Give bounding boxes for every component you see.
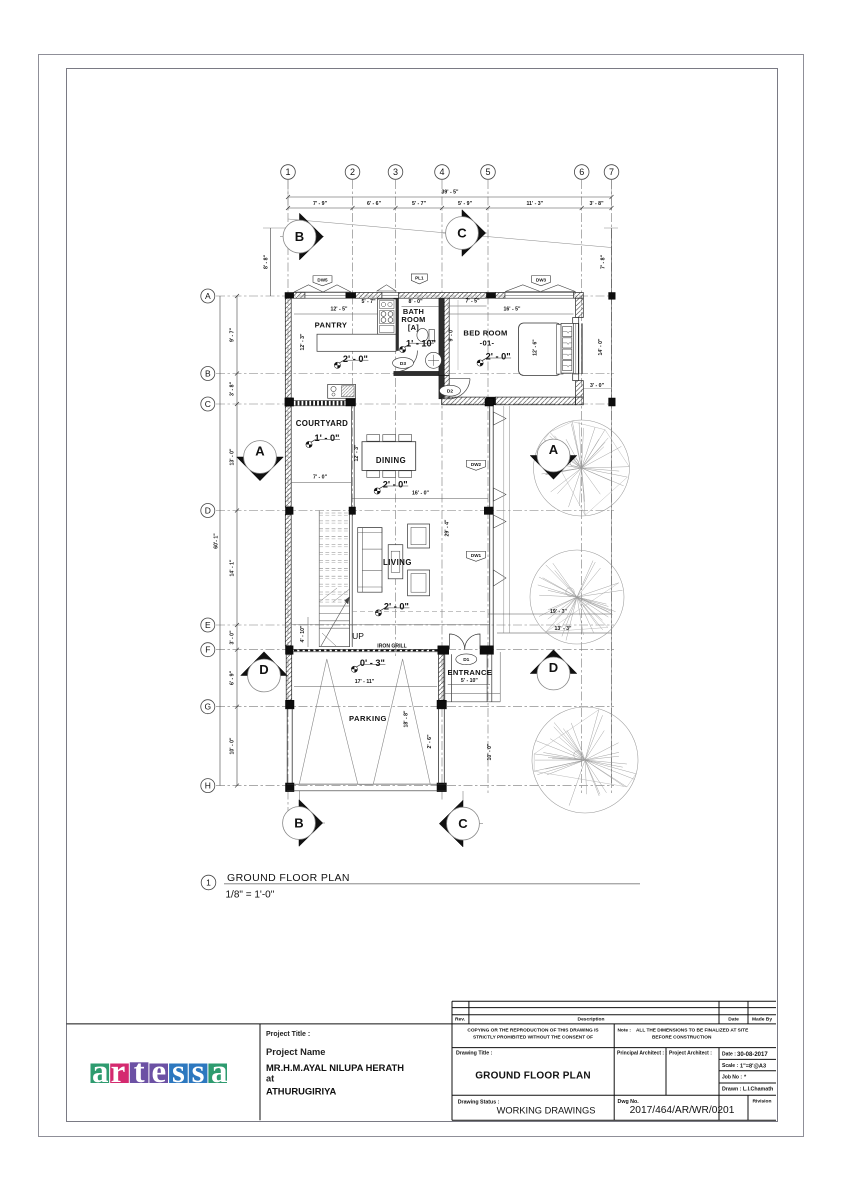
svg-text:8' - 8": 8' - 8" [264,254,270,269]
svg-text:12' - 3": 12' - 3" [300,333,306,350]
svg-text:r: r [111,1054,126,1090]
svg-text:D: D [205,506,211,516]
svg-text:5' - 7": 5' - 7" [361,299,376,305]
svg-text:30-08-2017: 30-08-2017 [737,1052,768,1058]
svg-text:7' - 9": 7' - 9" [313,201,328,207]
svg-text:Rev.: Rev. [455,1017,466,1023]
svg-text:Rivision: Rivision [752,1099,771,1105]
svg-text:12' - 3": 12' - 3" [354,444,360,461]
svg-text:E: E [205,620,211,630]
svg-text:G: G [204,702,211,712]
svg-text:a: a [92,1054,109,1090]
svg-text:11' - 3": 11' - 3" [526,201,543,207]
svg-text:A: A [549,442,559,457]
svg-text:e: e [151,1054,166,1090]
svg-text:B: B [295,229,304,244]
svg-text:B: B [205,369,211,379]
svg-text:Note :: Note : [618,1028,632,1034]
svg-text:3: 3 [393,167,398,177]
svg-text:7' - 8": 7' - 8" [601,254,607,269]
svg-text:2' - 0": 2' - 0" [383,480,408,490]
svg-text:-01-: -01- [480,339,495,348]
svg-text:29' - 4": 29' - 4" [445,519,451,536]
svg-text:8' - 0": 8' - 0" [408,299,423,305]
svg-text:Scale :: Scale : [722,1063,738,1069]
svg-text:ENTRANCE: ENTRANCE [448,668,493,677]
svg-text:*: * [744,1075,747,1081]
svg-text:B: B [294,816,303,831]
svg-text:1: 1 [285,167,290,177]
svg-text:0' - 3": 0' - 3" [360,658,385,668]
svg-text:WORKING DRAWINGS: WORKING DRAWINGS [497,1105,596,1115]
svg-text:7' - 0": 7' - 0" [313,475,328,481]
svg-text:F: F [205,645,210,655]
svg-text:4: 4 [439,167,444,177]
svg-text:17' - 11": 17' - 11" [355,679,375,685]
svg-text:9' - 0": 9' - 0" [449,327,455,342]
svg-text:STRICTLY PROHIBITED WITHOUT TH: STRICTLY PROHIBITED WITHOUT THE CONSENT … [473,1035,593,1041]
svg-text:COURTYARD: COURTYARD [296,419,348,428]
svg-text:A: A [255,444,265,459]
svg-text:IRON GRILL: IRON GRILL [377,643,406,649]
svg-text:t: t [134,1054,145,1090]
svg-text:UP: UP [352,631,364,641]
svg-text:7' - 5": 7' - 5" [465,299,480,305]
svg-text:1' - 10": 1' - 10" [406,339,436,349]
svg-text:D: D [259,662,268,677]
svg-text:Drawn : L.I.Chamath: Drawn : L.I.Chamath [722,1087,773,1093]
svg-text:13' - 0": 13' - 0" [230,448,236,465]
svg-text:5' - 9": 5' - 9" [458,201,473,207]
svg-text:Project Name: Project Name [266,1047,325,1057]
svg-text:GROUND FLOOR PLAN: GROUND FLOOR PLAN [475,1071,591,1082]
svg-text:12' - 5": 12' - 5" [331,307,348,313]
svg-text:A: A [205,291,211,301]
svg-text:12' - 6": 12' - 6" [533,339,539,356]
svg-text:5' - 10": 5' - 10" [461,678,478,684]
svg-text:6' - 6": 6' - 6" [367,201,382,207]
svg-text:1/8" = 1'-0": 1/8" = 1'-0" [226,890,275,901]
svg-text:7: 7 [609,167,614,177]
svg-text:Project Architect :: Project Architect : [669,1051,712,1057]
svg-text:Date :: Date : [722,1052,736,1058]
svg-text:2' - 0": 2' - 0" [343,354,368,364]
svg-text:MR.H.M.AYAL NILUPA HERATH: MR.H.M.AYAL NILUPA HERATH [266,1062,404,1073]
svg-text:GROUND FLOOR PLAN: GROUND FLOOR PLAN [227,872,350,884]
svg-text:5' - 7": 5' - 7" [412,201,427,207]
svg-text:H: H [205,781,211,791]
svg-text:60'- 1": 60'- 1" [214,533,220,549]
svg-text:Principal Architect : :: Principal Architect : : [617,1051,667,1057]
svg-text:ALL THE DIMENSIONS TO BE FINAL: ALL THE DIMENSIONS TO BE FINALIZED AT SI… [636,1028,748,1034]
svg-text:Description: Description [578,1017,605,1023]
svg-text:10' - 0": 10' - 0" [487,743,493,760]
svg-text:1' - 0": 1' - 0" [315,433,340,443]
svg-text:DW3: DW3 [536,277,547,282]
svg-text:D: D [549,660,558,675]
svg-text:2: 2 [350,167,355,177]
svg-text:at: at [266,1073,274,1083]
svg-text:16' - 0": 16' - 0" [412,491,429,497]
svg-text:Drawing Status :: Drawing Status : [458,1100,500,1106]
svg-text:5: 5 [485,167,490,177]
svg-text:2' - 0": 2' - 0" [384,602,409,612]
svg-text:Date: Date [728,1017,739,1023]
svg-text:2017/464/AR/WR/0201: 2017/464/AR/WR/0201 [630,1105,735,1116]
svg-text:a: a [211,1054,228,1090]
svg-text:3' - 0": 3' - 0" [230,630,236,645]
svg-text:DW2: DW2 [471,462,482,467]
svg-text:s: s [192,1054,205,1090]
svg-text:C: C [457,226,467,241]
svg-text:DW1: DW1 [471,553,482,558]
svg-text:6' - 9": 6' - 9" [230,670,236,685]
svg-text:2' - 6": 2' - 6" [427,734,433,749]
svg-text:D2: D2 [447,389,453,395]
svg-text:DINING: DINING [376,456,406,465]
svg-text:COPYING OR THE REPRODUCTION OF: COPYING OR THE REPRODUCTION OF THIS DRAW… [467,1028,598,1034]
svg-text:Job No :: Job No : [722,1075,742,1081]
svg-text:C: C [458,816,468,831]
svg-text:LIVING: LIVING [383,558,412,567]
svg-text:D3: D3 [400,361,406,367]
svg-text:4' - 10": 4' - 10" [300,625,306,642]
svg-text:1"=8'@A3: 1"=8'@A3 [740,1063,766,1069]
svg-text:18' - 8": 18' - 8" [404,710,410,727]
svg-text:14' - 1": 14' - 1" [230,559,236,576]
svg-text:39' - 5": 39' - 5" [442,190,459,196]
svg-text:ATHURUGIRIYA: ATHURUGIRIYA [266,1086,337,1097]
svg-text:9' - 7": 9' - 7" [230,327,236,342]
svg-text:D1: D1 [463,657,469,663]
svg-text:BED ROOM: BED ROOM [463,329,507,338]
svg-text:BEFORE CONSTRUCTION: BEFORE CONSTRUCTION [652,1035,712,1041]
svg-text:[A]: [A] [408,323,419,332]
svg-text:PARKING: PARKING [349,714,387,723]
svg-text:C: C [205,399,211,409]
svg-text:16' - 5": 16' - 5" [504,306,521,312]
svg-text:Made By: Made By [752,1017,772,1023]
svg-text:3' - 8": 3' - 8" [589,201,604,207]
svg-text:Drawing Title :: Drawing Title : [456,1051,493,1057]
svg-text:s: s [172,1054,185,1090]
svg-text:10' - 0": 10' - 0" [230,737,236,754]
svg-text:14' - 0": 14' - 0" [598,338,604,355]
svg-text:PANTRY: PANTRY [315,321,348,330]
svg-text:DW5: DW5 [317,277,328,282]
svg-text:2' - 0": 2' - 0" [486,352,511,362]
svg-text:1: 1 [206,878,211,888]
svg-text:3' - 0": 3' - 0" [590,383,605,389]
svg-text:6: 6 [579,167,584,177]
svg-text:3' - 8": 3' - 8" [230,381,236,396]
svg-text:PL1: PL1 [415,276,424,281]
svg-text:Project Title :: Project Title : [266,1031,310,1038]
